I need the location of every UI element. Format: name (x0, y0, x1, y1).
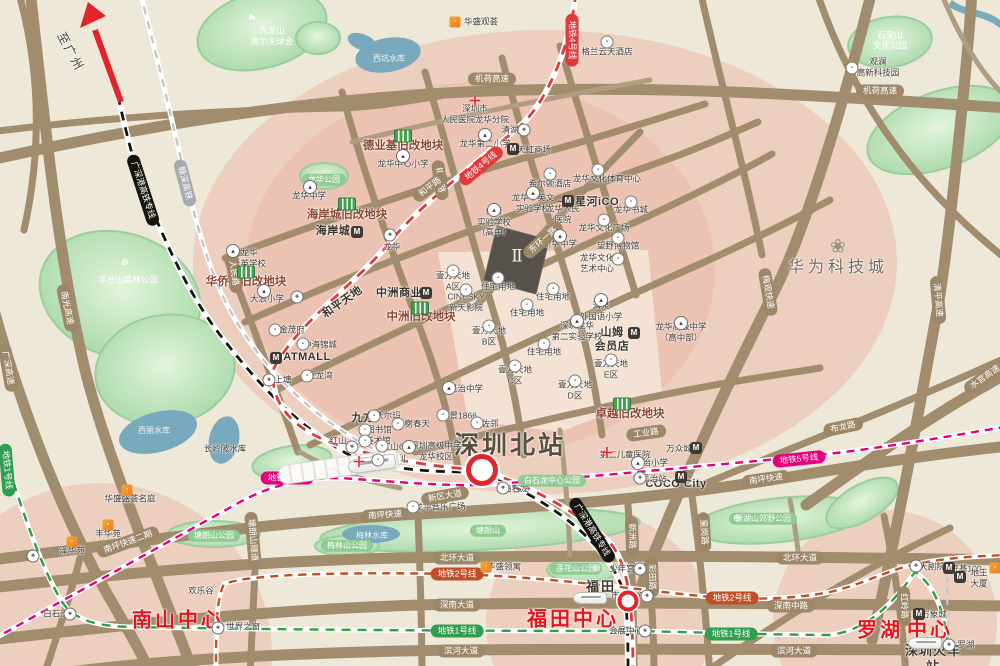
metro-icon: ◆ (64, 608, 77, 621)
dev-icon (613, 398, 631, 411)
cross-icon: ＋ (468, 94, 482, 108)
transit-line-label: 地铁1号线 (0, 443, 16, 497)
park-label: 塘朗山 (470, 525, 506, 537)
poi-label: 龙华文化体育中心 (573, 174, 641, 185)
circle-icon: • (471, 417, 484, 430)
road-label: 布龙路 (822, 417, 863, 438)
project-building-mark: Ⅱ (511, 245, 521, 266)
circle-icon: • (359, 435, 372, 448)
lake-txt-label: 西坑水库 (373, 54, 405, 64)
school-icon: ▴ (487, 203, 501, 217)
road-label: 机荷高速 (468, 72, 516, 85)
proj-label: 中洲商业 (376, 287, 422, 301)
circle-icon: • (538, 338, 551, 351)
circle-icon: • (612, 253, 625, 266)
m-icon: M (628, 327, 640, 339)
transit-line-label: 地铁5号线 (772, 450, 826, 468)
pplus-icon: ⊕ (593, 564, 601, 574)
poi-label: 龙华文化 艺术中心 (580, 252, 614, 273)
poi-label: 罗湖 (957, 640, 974, 651)
circle-icon: • (612, 232, 625, 245)
school-icon: ▴ (303, 180, 317, 194)
cross-icon: ＋ (352, 455, 366, 469)
transit-line-label: 广深港高铁专线 (125, 153, 160, 227)
road-label: 南坪快速 (361, 507, 410, 523)
school-icon: ▴ (674, 316, 688, 330)
school-icon: ▴ (257, 284, 271, 298)
poi-label: 金茂府 (279, 325, 305, 336)
proj-label: 海岸城 (316, 225, 351, 239)
road-label: 清平高速 (929, 276, 946, 325)
circle-icon: • (407, 501, 420, 514)
metro-icon: ◆ (291, 291, 304, 304)
road-label: 新洲路 (625, 516, 639, 556)
dev-icon (237, 266, 255, 279)
road-label: 广深高速 (0, 343, 19, 393)
circle-icon: • (269, 324, 282, 337)
transit-line-label: 地铁2号线 (431, 567, 484, 580)
poi-label: 华盛观荟 (464, 17, 498, 28)
road-label: 滨河大道 (437, 644, 485, 657)
m-icon: M (270, 352, 282, 364)
m-icon: M (690, 442, 702, 454)
poi-label: 万众城 (666, 444, 692, 455)
park-txt-label: 九龙山 高尔夫球会 (251, 25, 294, 46)
transit-line-label: 地铁2号线 (706, 591, 759, 604)
metro-icon: ◆ (263, 374, 276, 387)
bullet-train-icon (573, 592, 607, 604)
metro-icon: ◆ (641, 590, 654, 603)
circle-icon: • (846, 62, 859, 75)
road-label: 深南中路 (767, 599, 815, 612)
circle-icon: • (605, 354, 618, 367)
m-icon: M (351, 226, 363, 238)
poi-label: 地王大厦 (969, 567, 990, 588)
metro-icon: ◆ (212, 622, 225, 635)
metro-icon: ◆ (634, 563, 647, 576)
metro-icon: ◆ (943, 639, 956, 652)
poi-label: 天虹商场 (517, 145, 551, 156)
luohu-label: 罗湖 (857, 619, 903, 644)
poi-label: 深圳高级中学 龙华校区 (410, 440, 461, 461)
school-icon: ▴ (226, 244, 240, 258)
lake-txt-label: 西丽水库 (138, 426, 170, 436)
road-label: 南坪快速 (741, 469, 790, 489)
road-label: 塘朗山隧道 (244, 511, 262, 568)
pplus-icon: ⊕ (121, 258, 129, 268)
orange-icon: ▪ (103, 520, 114, 531)
road-label: 滨河大道 (770, 644, 818, 657)
circle-icon: • (372, 454, 385, 467)
poi-label: 龙华 (383, 242, 400, 253)
school-icon: ▴ (396, 149, 410, 163)
circle-icon: • (376, 440, 389, 453)
circle-icon: • (392, 418, 405, 431)
m-icon: M (420, 287, 432, 299)
m-icon: M (954, 571, 966, 583)
school-icon: ▴ (594, 293, 608, 307)
metro-icon: ◆ (497, 482, 510, 495)
dev-icon (411, 302, 429, 315)
map-label-layer: 至广州深圳北站南山中心福田中心罗湖中心深圳火车站福田华为科技城Ⅱ德业基旧改地块海… (0, 0, 1000, 666)
circle-icon: • (547, 283, 560, 296)
poi-label: 长岭陂水库 (204, 444, 247, 455)
circle-icon: • (492, 272, 505, 285)
circle-icon: • (297, 338, 310, 351)
m-icon: M (913, 608, 925, 620)
circle-icon: • (483, 320, 496, 333)
metro-icon: ◆ (27, 550, 40, 563)
road-label: 机荷高速 (856, 84, 904, 97)
road-label: 南光高速 (56, 283, 79, 333)
nanshan-center-label: 南山中心 (132, 609, 224, 634)
circle-icon: • (301, 370, 314, 383)
transit-line-label: 赣深高铁 (172, 158, 197, 208)
school-icon: ▴ (526, 186, 540, 200)
circle-icon: • (592, 164, 605, 177)
poi-label: 大剧院 (919, 562, 945, 573)
road-label: 北环大道 (433, 551, 481, 564)
m-icon: M (507, 143, 519, 155)
proj-label: 星河iCO (575, 196, 619, 210)
poi-label: 红山 (329, 436, 346, 447)
school-icon: ▴ (570, 314, 584, 328)
circle-icon: • (437, 409, 450, 422)
park-label: 白石龙中心公园 (518, 475, 586, 487)
shenzhen-north-hub-ring (466, 454, 498, 486)
park-txt-label: 石宝山 文化公园 (873, 29, 907, 50)
m-icon: M (675, 471, 687, 483)
road-label: 深南大道 (433, 598, 481, 611)
orange-icon: ▪ (67, 537, 78, 548)
poi-label: 少年宫 (609, 564, 635, 575)
transit-line-label: 地铁4号线 (565, 14, 578, 67)
metro-icon: ◆ (910, 560, 923, 573)
metro-icon: ◆ (384, 229, 397, 242)
circle-icon: • (569, 375, 582, 388)
poi-label: 上塘 (274, 375, 291, 386)
pplus-icon: ⊕ (733, 514, 741, 524)
train-body (573, 592, 607, 604)
circle-icon: • (598, 214, 611, 227)
road-label: 红岭路 (897, 586, 911, 626)
metro-icon: ◆ (639, 625, 652, 638)
circle-icon: • (509, 360, 522, 373)
transit-line-label: 广深港高铁专线 (567, 495, 617, 564)
orange-icon: ▪ (990, 563, 1000, 574)
metro-icon: ◆ (634, 472, 647, 485)
park-txt-label: 羊台山森林公园 (98, 275, 158, 286)
poi-label: 清湖 (501, 125, 518, 136)
park-label: 塘朗山公园 (188, 530, 240, 542)
transit-line-label: 地铁1号线 (705, 627, 758, 640)
orange-icon: ▪ (450, 17, 461, 28)
poi-label: 世界之窗 (226, 622, 260, 633)
road-label: 梅观快速 (757, 267, 778, 317)
road-label: 北环大道 (776, 551, 824, 564)
circle-icon: • (544, 168, 557, 181)
school-icon: ▴ (442, 381, 456, 395)
circle-icon: • (368, 410, 381, 423)
road-label: 水官高速 (962, 358, 1000, 396)
poi-label: 欢乐谷 (188, 586, 214, 597)
huawei-tech-city-label: 华为科技城 (788, 258, 888, 278)
poi-label: 佐邻 (481, 419, 498, 430)
metro-icon: ◆ (518, 124, 531, 137)
poi-label: 观澜 高新科技园 (857, 56, 900, 77)
transit-line-label: 地铁4号线 (457, 144, 506, 188)
circle-icon: • (601, 36, 614, 49)
train-body (908, 637, 942, 649)
dev-icon (338, 198, 356, 211)
proj-label: ATMALL (283, 351, 330, 365)
poi-label: 华盛领寓 (487, 562, 521, 573)
bullet-train-icon (908, 637, 942, 649)
school-icon: ▴ (631, 456, 645, 470)
road-label: 皇岗路 (696, 512, 711, 552)
school-icon: ▴ (402, 440, 416, 454)
m-icon: M (562, 195, 574, 207)
road-label: 工业路 (626, 424, 667, 442)
metro-icon: ◆ (346, 441, 359, 454)
golf-flag-icon: ⚑ (248, 15, 257, 25)
circle-icon: • (625, 196, 638, 209)
circle-icon: • (460, 284, 473, 297)
school-icon: ▴ (553, 229, 567, 243)
to-guangzhou-label: 至广州 (54, 30, 87, 74)
orange-icon: ▪ (481, 562, 492, 573)
poi-label: 万象城 (921, 610, 947, 621)
futian-center-label: 福田中心 (527, 608, 619, 633)
futian-hub-ring (618, 591, 639, 612)
cross-icon: ＋ (600, 446, 614, 460)
transit-line-label: 地铁1号线 (431, 624, 484, 637)
dev-icon (394, 130, 412, 143)
shenzhen-area-map: 至广州深圳北站南山中心福田中心罗湖中心深圳火车站福田华为科技城Ⅱ德业基旧改地块海… (0, 0, 1000, 666)
school-icon: ▴ (478, 128, 492, 142)
huawei-flower-icon: ❀ (830, 238, 846, 257)
park-label: 梅林山公园 (321, 540, 373, 552)
proj-label: 和平天地 (320, 284, 366, 322)
circle-icon: • (521, 299, 534, 312)
orange-icon: ▪ (122, 485, 133, 496)
circle-icon: • (447, 265, 460, 278)
